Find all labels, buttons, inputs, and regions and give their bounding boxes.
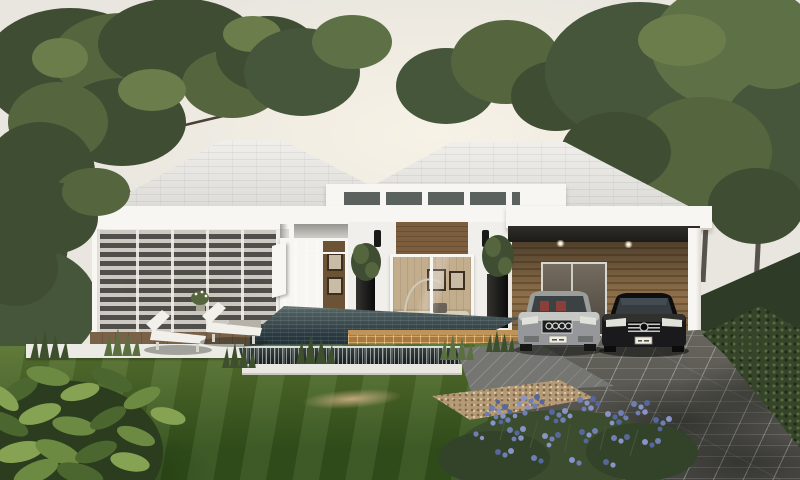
rendering-canvas [0,0,800,480]
foreground-shrub [0,363,187,480]
foreground-planting [0,0,800,480]
blue-flower-bed [438,394,698,480]
